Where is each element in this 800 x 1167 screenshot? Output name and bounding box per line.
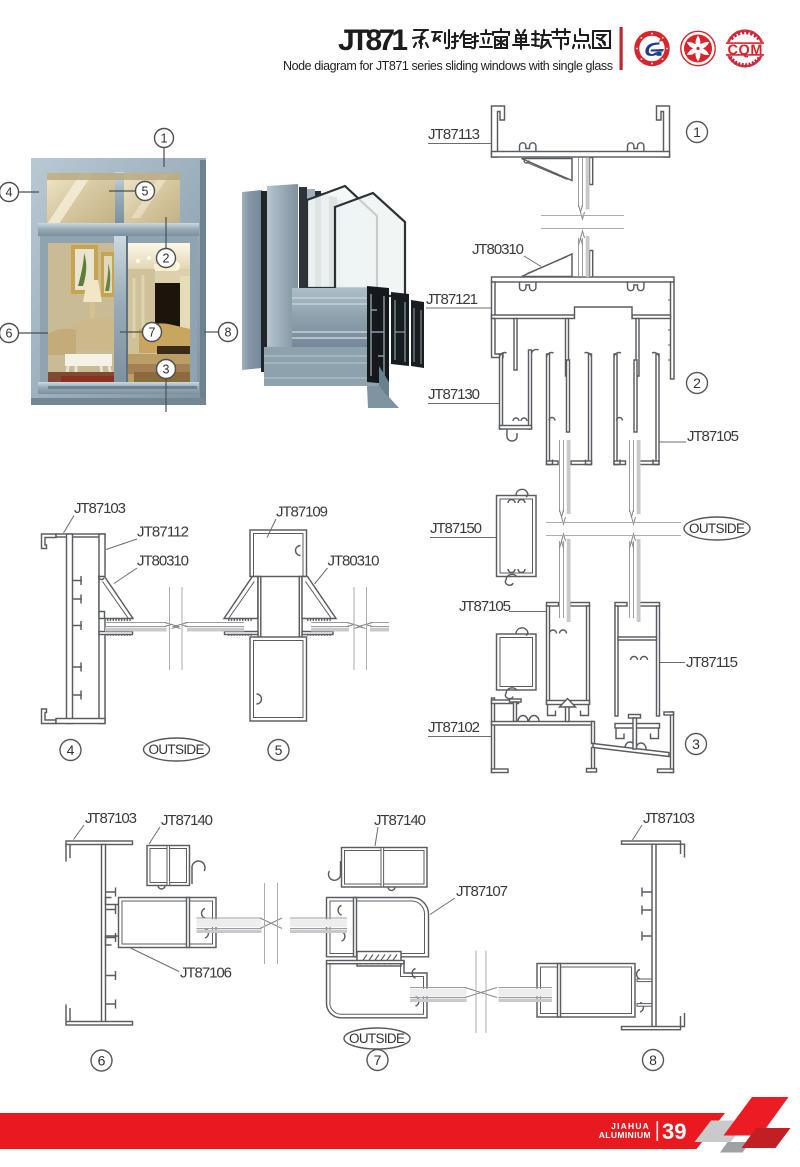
- svg-text:JT87140: JT87140: [374, 812, 426, 829]
- svg-text:OUTSIDE: OUTSIDE: [689, 521, 745, 536]
- svg-text:JT87140: JT87140: [161, 812, 213, 829]
- svg-text:JT87109: JT87109: [276, 504, 328, 521]
- svg-text:3: 3: [163, 363, 170, 377]
- svg-text:6: 6: [98, 1053, 106, 1069]
- svg-text:JT87105: JT87105: [687, 428, 739, 445]
- svg-text:JT87150: JT87150: [430, 520, 482, 537]
- svg-text:6: 6: [6, 327, 13, 341]
- svg-text:JT87107: JT87107: [456, 883, 508, 900]
- svg-text:4: 4: [67, 742, 75, 758]
- svg-text:7: 7: [374, 1052, 382, 1068]
- svg-text:JT87103: JT87103: [85, 810, 137, 827]
- svg-text:5: 5: [142, 185, 149, 199]
- svg-text:8: 8: [225, 326, 232, 340]
- svg-text:1: 1: [693, 124, 701, 140]
- svg-text:JT871: JT871: [338, 24, 408, 57]
- svg-text:7: 7: [149, 326, 156, 340]
- svg-text:5: 5: [275, 742, 283, 758]
- svg-text:JT87113: JT87113: [428, 126, 480, 143]
- svg-text:JT80310: JT80310: [472, 241, 524, 258]
- svg-text:8: 8: [649, 1052, 657, 1068]
- svg-text:JT87112: JT87112: [137, 524, 189, 541]
- svg-text:JT87103: JT87103: [643, 810, 695, 827]
- svg-text:OUTSIDE: OUTSIDE: [149, 742, 205, 757]
- svg-text:JT87130: JT87130: [428, 386, 480, 403]
- svg-text:2: 2: [693, 375, 701, 391]
- svg-text:JT87121: JT87121: [426, 291, 478, 308]
- svg-text:JT80310: JT80310: [137, 553, 189, 570]
- svg-text:Node diagram for JT871 series: Node diagram for JT871 series sliding wi…: [283, 59, 613, 73]
- svg-text:JT87102: JT87102: [428, 719, 480, 736]
- svg-text:3: 3: [692, 736, 700, 752]
- svg-text:CQM: CQM: [728, 42, 763, 58]
- svg-text:OUTSIDE: OUTSIDE: [349, 1031, 405, 1046]
- svg-text:JT87103: JT87103: [74, 500, 126, 517]
- svg-text:2: 2: [163, 252, 170, 266]
- svg-text:JT87106: JT87106: [180, 965, 232, 982]
- svg-text:4: 4: [6, 186, 13, 200]
- svg-text:JT87105: JT87105: [459, 598, 511, 615]
- svg-text:1: 1: [161, 132, 168, 146]
- svg-text:39: 39: [662, 1119, 686, 1144]
- svg-text:JT87115: JT87115: [686, 654, 738, 671]
- svg-text:JT80310: JT80310: [328, 553, 380, 570]
- svg-text:ALUMINIUM: ALUMINIUM: [599, 1130, 651, 1140]
